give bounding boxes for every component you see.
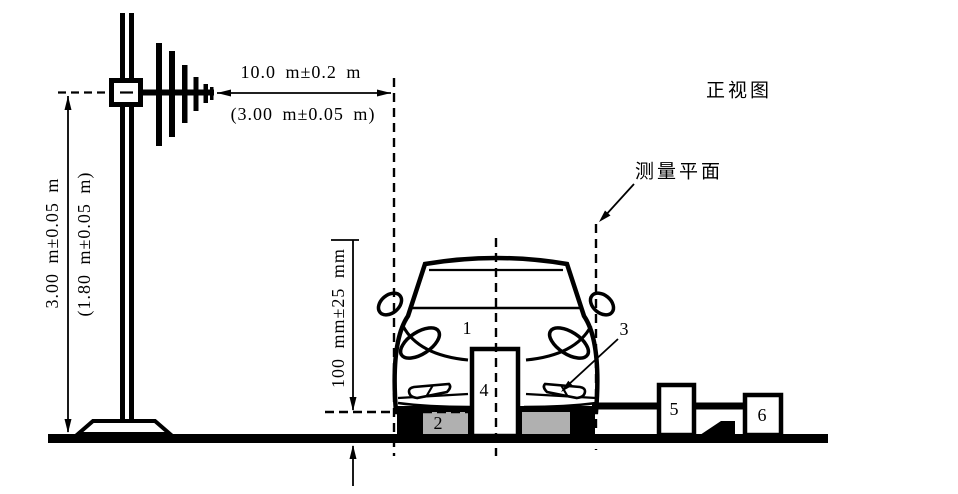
- dim-antenna-distance-label: 10.0 m±0.2 m: [241, 63, 362, 81]
- antenna-boom: [143, 90, 214, 96]
- dimension-antenna-distance: [217, 90, 391, 97]
- cable-tray-segment: [592, 403, 657, 410]
- technical-diagram-front-view: 10.0 m±0.2 m (3.00 m±0.05 m) 3.00 m±0.05…: [0, 0, 958, 494]
- vehicle-mirror-left: [374, 289, 405, 320]
- cable-tray-segment: [696, 403, 743, 410]
- arrowhead-left: [217, 90, 231, 97]
- dim-ground-clearance-label: 100 mm±25 mm: [329, 248, 347, 388]
- dim-antenna-distance-alt-label: (3.00 m±0.05 m): [231, 105, 376, 123]
- antenna-mast: [120, 13, 125, 423]
- callout-3: 3: [620, 320, 629, 338]
- arrowhead-down: [350, 397, 357, 411]
- antenna-element: [210, 87, 214, 100]
- arrowhead-down: [65, 419, 72, 433]
- antenna-mast-base: [78, 421, 170, 434]
- antenna-mast: [129, 13, 134, 423]
- support-block-left: [423, 412, 468, 434]
- callout-1: 1: [463, 319, 472, 337]
- ramp-wedge: [700, 421, 735, 435]
- dimension-antenna-height: [65, 96, 72, 433]
- antenna-assembly: [78, 13, 214, 434]
- right-side-equipment: [592, 385, 781, 435]
- diagram-linework: [0, 0, 958, 494]
- callout-2: 2: [434, 414, 443, 432]
- callout-5: 5: [670, 400, 679, 418]
- ground-plane: [48, 434, 828, 443]
- callout-6: 6: [758, 406, 767, 424]
- antenna-element: [169, 51, 175, 137]
- measurement-plane-label: 测量平面: [635, 163, 723, 182]
- callout-4: 4: [480, 381, 489, 399]
- dim-antenna-height-alt-label: (1.80 m±0.05 m): [75, 172, 93, 317]
- antenna-element: [204, 84, 209, 103]
- vehicle-mirror-right: [586, 289, 617, 320]
- antenna-element: [194, 77, 199, 111]
- dim-antenna-height-label: 3.00 m±0.05 m: [43, 178, 61, 309]
- antenna-element: [182, 65, 188, 123]
- arrowhead-up: [350, 445, 357, 459]
- view-title: 正视图: [706, 82, 772, 101]
- arrowhead-up: [65, 96, 72, 110]
- antenna-element: [156, 43, 162, 146]
- arrowhead-right: [377, 90, 391, 97]
- support-block-right: [522, 412, 570, 434]
- measurement-plane-leader: [599, 184, 634, 222]
